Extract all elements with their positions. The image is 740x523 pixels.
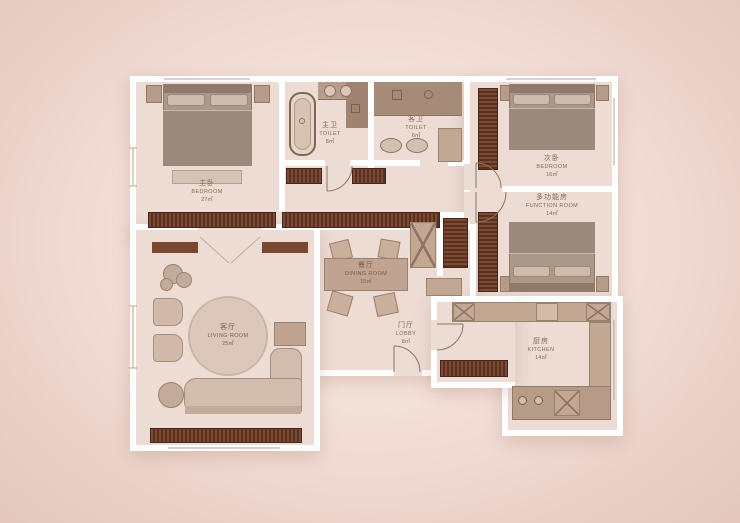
nightstand <box>596 276 609 292</box>
room-name-zh: 餐厅 <box>345 261 387 271</box>
bedroom2-wardrobe <box>478 88 498 170</box>
room-name-en: TOILET <box>319 131 341 139</box>
pillow <box>554 94 591 105</box>
pillow <box>513 266 550 277</box>
bed-blanket <box>163 110 252 166</box>
corridor-cabinet-2 <box>352 168 386 184</box>
wall-bath-south-right <box>350 160 374 166</box>
room-area: 27㎡ <box>191 197 222 205</box>
media-cabinet-east <box>262 242 308 253</box>
toilet2-side-cabinet <box>438 128 462 162</box>
nightstand <box>254 85 270 103</box>
sink-icon <box>324 85 336 97</box>
room-name-en: LOBBY <box>396 331 416 339</box>
lobby-cabinet <box>426 278 462 296</box>
kitchen-sink-icon <box>554 390 580 416</box>
wall-bath-south-left <box>285 160 325 166</box>
room-area: 14㎡ <box>528 355 555 363</box>
pillow <box>210 94 248 106</box>
sink-icon <box>340 85 352 97</box>
kitchen-west-cabinet <box>440 360 508 377</box>
room-name-en: BEDROOM <box>191 189 222 197</box>
bed-headboard <box>163 84 252 92</box>
room-name-zh: 主卫 <box>319 121 341 131</box>
floor-plan-canvas: 主卧 BEDROOM 27㎡ 主卫 TOILET 8㎡ 客卫 TOILET 6㎡… <box>0 0 740 523</box>
wall-bedroom-bath <box>279 82 285 212</box>
nightstand <box>146 85 162 103</box>
armchair <box>153 298 183 326</box>
room-name-zh: 主卧 <box>191 179 222 189</box>
fixture-icon <box>424 90 433 99</box>
room-area: 25㎡ <box>207 341 248 349</box>
room-label-lobby: 门厅 LOBBY 8㎡ <box>396 321 416 347</box>
coffee-table <box>274 322 306 346</box>
room-name-zh: 厨房 <box>528 337 555 347</box>
room-name-zh: 多功能房 <box>526 193 578 203</box>
bed-headboard <box>509 284 595 292</box>
sofa-back <box>185 406 301 414</box>
room-area: 8㎡ <box>396 339 416 347</box>
opening-bedroom2-door <box>464 164 476 190</box>
room-label-kitchen: 厨房 KITCHEN 14㎡ <box>528 337 555 363</box>
wall-bedroom2-function <box>502 186 612 192</box>
bathtub-inner <box>294 98 311 150</box>
bathtub-drain-icon <box>299 118 305 124</box>
room-label-second-bedroom: 次卧 BEDROOM 16㎡ <box>536 154 567 180</box>
kitchen-appliance <box>536 303 558 321</box>
room-name-en: FUNCTION ROOM <box>526 203 578 211</box>
room-label-master-toilet: 主卫 TOILET 8㎡ <box>319 121 341 147</box>
room-name-zh: 客厅 <box>207 323 248 333</box>
room-label-master-bedroom: 主卧 BEDROOM 27㎡ <box>191 179 222 205</box>
pillow <box>167 94 205 106</box>
room-name-zh: 门厅 <box>396 321 416 331</box>
pillow <box>513 94 550 105</box>
corridor-cabinet-1 <box>286 168 322 184</box>
shoe-cabinet <box>410 222 436 268</box>
toilet-icon <box>380 138 402 153</box>
burner-icon <box>518 396 527 405</box>
toilet2-cabinet-block <box>374 82 462 116</box>
opening-entry-door <box>394 370 422 376</box>
burner-icon <box>534 396 543 405</box>
bed-headboard <box>509 84 595 92</box>
nightstand <box>596 85 609 101</box>
room-area: 6㎡ <box>405 133 427 141</box>
living-south-cabinet <box>150 428 302 443</box>
room-name-zh: 次卧 <box>536 154 567 164</box>
side-table <box>158 382 184 408</box>
opening-kitchen-door <box>431 320 437 350</box>
bed-blanket <box>509 222 595 254</box>
dining-chair <box>373 292 399 317</box>
lobby-wardrobe <box>443 218 468 268</box>
function-room-wardrobe <box>478 212 498 292</box>
room-label-function-room: 多功能房 FUNCTION ROOM 14㎡ <box>526 193 578 219</box>
corridor-wardrobe-west <box>148 212 276 228</box>
room-name-en: TOILET <box>405 125 427 133</box>
bed-blanket <box>509 108 595 150</box>
room-name-en: DINING ROOM <box>345 271 387 279</box>
room-name-zh: 客卫 <box>405 115 427 125</box>
room-label-living-room: 客厅 LIVING ROOM 25㎡ <box>207 323 248 349</box>
plant <box>176 272 192 288</box>
room-name-en: BEDROOM <box>536 164 567 172</box>
room-area: 8㎡ <box>319 139 341 147</box>
washer-icon <box>392 90 402 100</box>
room-name-en: KITCHEN <box>528 347 555 355</box>
room-name-en: LIVING ROOM <box>207 333 248 341</box>
room-area: 15㎡ <box>345 279 387 287</box>
room-area: 14㎡ <box>526 211 578 219</box>
pillow <box>554 266 591 277</box>
room-area: 16㎡ <box>536 172 567 180</box>
shower-drain-icon <box>351 104 360 113</box>
wall-toilet2-south-left <box>374 160 420 166</box>
media-cabinet-west <box>152 242 198 253</box>
armchair <box>153 334 183 362</box>
plant <box>160 278 173 291</box>
kitchen-cabinet-icon <box>453 303 475 321</box>
kitchen-cabinet-icon <box>586 303 610 321</box>
room-label-guest-toilet: 客卫 TOILET 6㎡ <box>405 115 427 141</box>
room-label-dining-room: 餐厅 DINING ROOM 15㎡ <box>345 261 387 287</box>
